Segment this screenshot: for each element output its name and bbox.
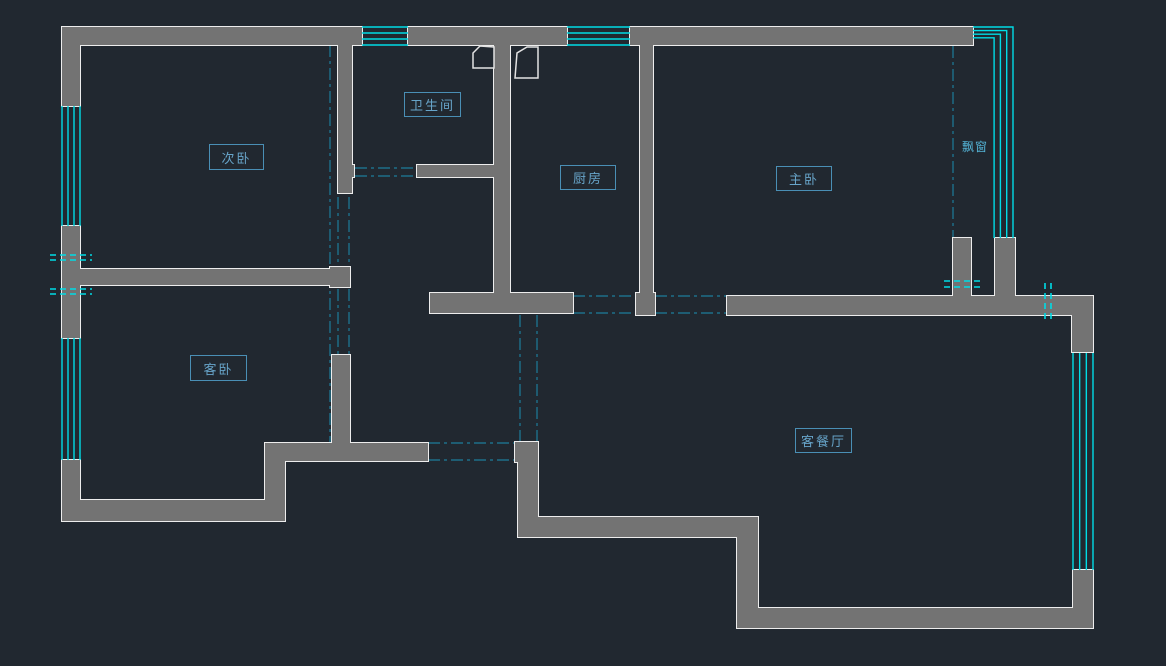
wall-segment: [1073, 570, 1093, 608]
wall-segment: [640, 45, 653, 295]
wall-segment: [630, 27, 973, 45]
wall-segment: [332, 355, 350, 443]
wall-segment: [63, 27, 362, 45]
wall-segment: [430, 293, 573, 313]
wall-segment: [636, 293, 655, 315]
bay-window-line: [973, 31, 1007, 238]
room-label-master-bedroom: 主卧: [776, 166, 832, 191]
wall-segment: [518, 517, 758, 537]
wall-segment: [494, 45, 510, 313]
room-label-kitchen: 厨房: [560, 165, 616, 190]
wall-segment: [953, 238, 971, 298]
floor-plan-canvas[interactable]: 次卧 卫生间 厨房 主卧 客卧 客餐厅 飘窗: [0, 0, 1166, 666]
room-label-guest-bedroom: 客卧: [190, 355, 247, 381]
wall-segment: [330, 267, 350, 287]
wall-segment: [1072, 296, 1093, 352]
wall-segment: [995, 238, 1015, 296]
wall-segment: [79, 269, 337, 285]
wall-segment: [338, 165, 354, 177]
door-leaf: [515, 47, 538, 78]
wall-segment: [408, 27, 567, 45]
wall-segment: [417, 165, 495, 177]
wall-segment: [515, 442, 538, 462]
floor-plan-drawing: [0, 0, 1166, 666]
wall-segment: [737, 537, 758, 628]
room-label-living-dining: 客餐厅: [795, 428, 852, 453]
door-leaf: [473, 46, 494, 68]
wall-segment: [62, 226, 80, 338]
wall-segment: [757, 608, 1093, 628]
room-label-bathroom: 卫生间: [404, 92, 461, 117]
room-label-secondary-bedroom: 次卧: [209, 144, 264, 170]
wall-segment: [62, 500, 285, 521]
room-label-bay-window: 飘窗: [957, 136, 993, 156]
wall-segment: [265, 443, 428, 461]
wall-segment: [727, 296, 1093, 315]
